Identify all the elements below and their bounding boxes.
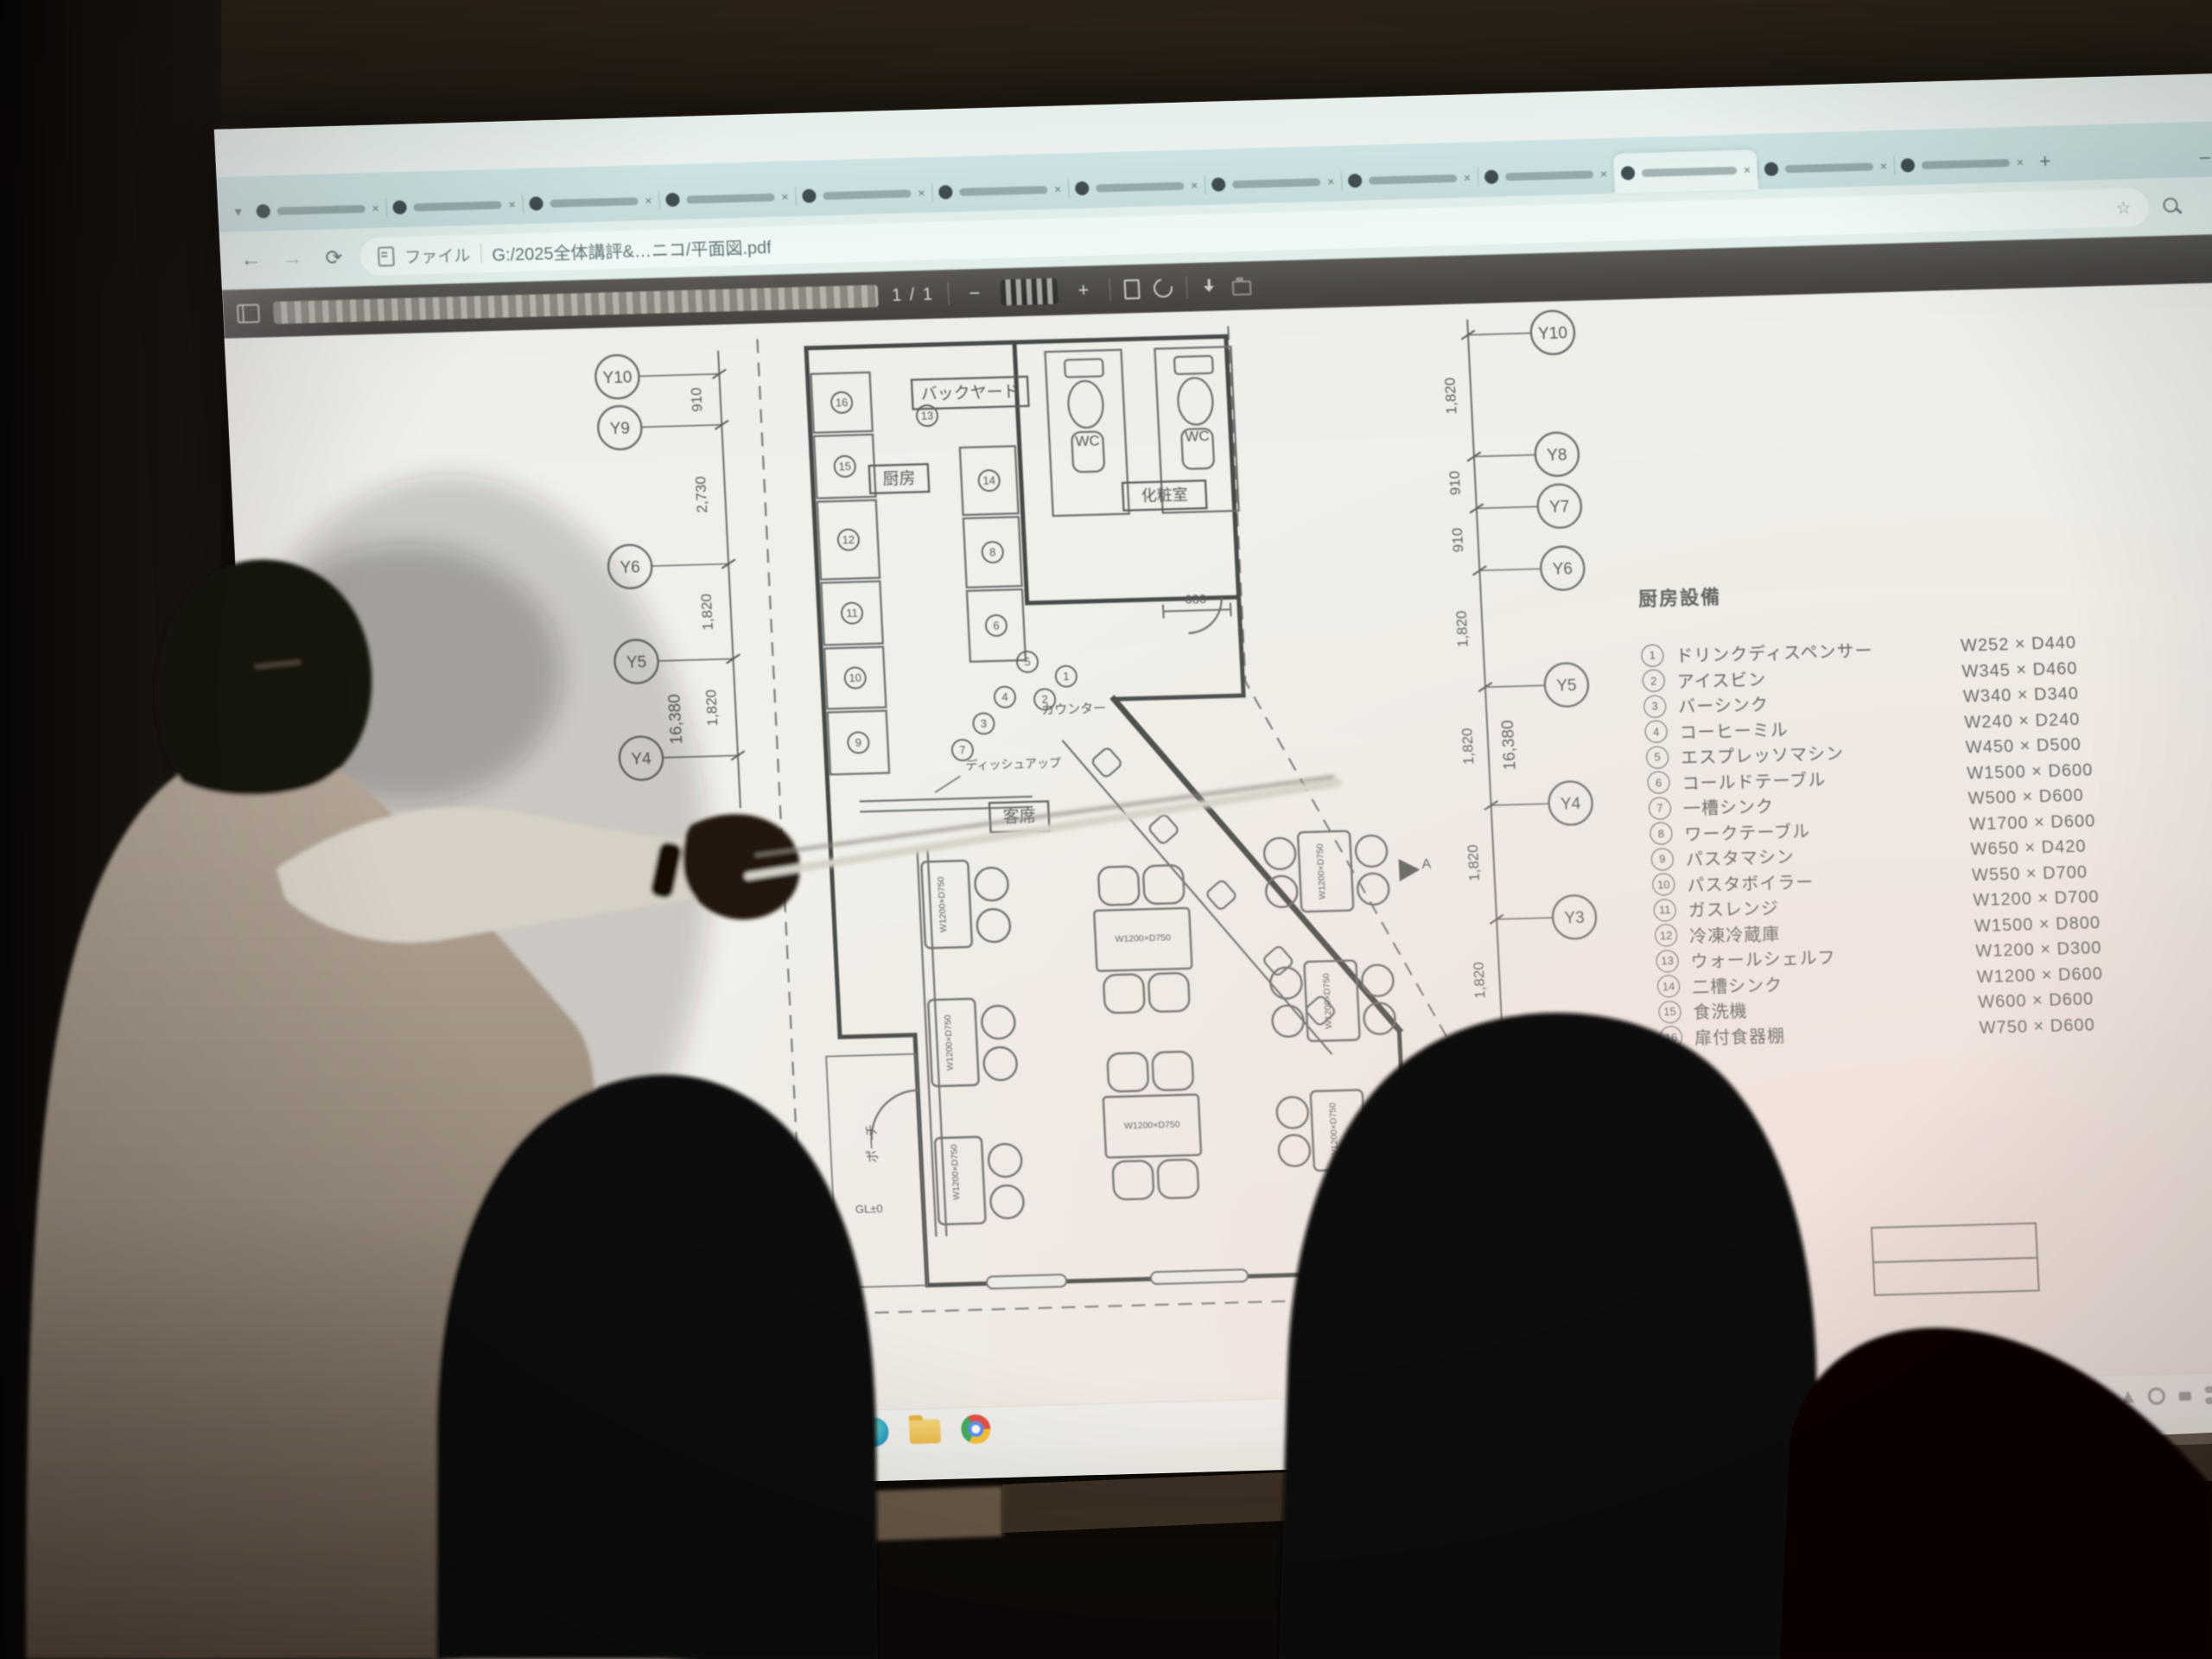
- tab-favicon: [529, 196, 543, 210]
- svg-text:W1200×D750: W1200×D750: [936, 876, 949, 932]
- svg-text:4: 4: [1001, 690, 1008, 703]
- svg-text:WC: WC: [1075, 433, 1100, 450]
- equipment-size: W1200 × D600: [1976, 964, 2103, 988]
- equipment-number: 6: [1647, 772, 1670, 795]
- tab-favicon: [392, 200, 407, 214]
- door-leaves: [987, 1266, 1389, 1289]
- svg-text:630: 630: [1185, 592, 1207, 607]
- new-tab-button[interactable]: +: [2030, 141, 2061, 181]
- zoom-in-button[interactable]: +: [1071, 279, 1096, 302]
- tab-close-icon[interactable]: ×: [1464, 170, 1471, 184]
- tab-title-blur: [276, 205, 365, 215]
- equipment-size: W240 × D240: [1964, 710, 2081, 734]
- tab-close-icon[interactable]: ×: [645, 194, 652, 207]
- svg-text:カウンター: カウンター: [1041, 701, 1107, 717]
- svg-text:1,820: 1,820: [1459, 728, 1477, 765]
- pdf-document-area[interactable]: Y10Y9Y6Y5Y4Y10Y8Y7Y6Y5Y4Y3Y29102,7301,82…: [225, 283, 2212, 1427]
- section-marker: [1399, 858, 1421, 881]
- tab-close-icon[interactable]: ×: [918, 186, 925, 200]
- pdf-page-indicator: 1 / 1: [892, 284, 935, 305]
- tab-favicon: [1211, 177, 1226, 191]
- svg-text:11: 11: [846, 607, 858, 620]
- svg-text:13: 13: [920, 409, 933, 422]
- tab-title-blur: [1505, 170, 1593, 181]
- tray-status-icon[interactable]: [2147, 1388, 2165, 1406]
- pdf-divider: [1109, 278, 1110, 301]
- browser-tab[interactable]: ×: [1067, 165, 1205, 208]
- pdf-divider: [947, 283, 949, 305]
- equipment-number: 9: [1650, 848, 1674, 871]
- svg-text:A: A: [1421, 857, 1432, 872]
- svg-text:客席: 客席: [1002, 807, 1036, 827]
- equipment-size: W1200 × D700: [1973, 888, 2100, 912]
- equipment-number: 3: [1643, 695, 1667, 718]
- download-icon[interactable]: [1200, 278, 1218, 296]
- address-path: G:/2025全体講評&…ニコ/平面図.pdf: [492, 233, 772, 266]
- forward-button[interactable]: →: [277, 246, 308, 271]
- svg-text:W1200×D750: W1200×D750: [1315, 843, 1328, 899]
- svg-text:7: 7: [959, 744, 966, 757]
- tab-favicon: [1621, 166, 1636, 180]
- svg-text:3: 3: [980, 717, 987, 730]
- svg-text:1,820: 1,820: [698, 594, 716, 631]
- svg-text:2: 2: [1041, 693, 1048, 706]
- tab-close-icon[interactable]: ×: [508, 197, 516, 211]
- battery-icon[interactable]: [2179, 1392, 2191, 1401]
- browser-tab[interactable]: ×: [1340, 157, 1478, 200]
- svg-text:8: 8: [989, 545, 996, 558]
- tab-favicon: [938, 185, 953, 199]
- svg-text:14: 14: [982, 474, 995, 486]
- equipment-size: W550 × D700: [1972, 863, 2088, 887]
- search-icon[interactable]: [2160, 194, 2183, 218]
- equipment-number: 15: [1658, 1001, 1681, 1024]
- browser-tab[interactable]: ×: [1477, 154, 1615, 197]
- tab-close-icon[interactable]: ×: [781, 189, 789, 203]
- tab-close-icon[interactable]: ×: [1191, 178, 1198, 192]
- equipment-size: W650 × D420: [1970, 837, 2087, 861]
- equipment-size: W1500 × D800: [1974, 913, 2101, 937]
- tab-favicon: [802, 189, 817, 203]
- tab-close-icon[interactable]: ×: [1743, 162, 1751, 176]
- tab-title-blur: [686, 193, 774, 203]
- tab-favicon: [1484, 170, 1499, 184]
- tab-favicon: [1075, 181, 1090, 195]
- svg-text:Y10: Y10: [1538, 324, 1568, 343]
- equipment-number: 12: [1655, 924, 1678, 947]
- tab-title-blur: [1922, 159, 2010, 169]
- svg-text:1,820: 1,820: [1453, 610, 1471, 647]
- tab-favicon: [665, 193, 680, 207]
- svg-text:W1200×D750: W1200×D750: [943, 1014, 956, 1071]
- browser-tab[interactable]: ×: [1757, 146, 1895, 189]
- browser-taskbar-icon[interactable]: [859, 1417, 890, 1447]
- browser-tab[interactable]: ×: [658, 176, 796, 219]
- equipment-size: W1200 × D300: [1975, 939, 2102, 963]
- tab-search-icon[interactable]: ▾: [226, 192, 251, 232]
- print-icon[interactable]: [1232, 280, 1252, 296]
- file-icon: [378, 246, 395, 267]
- svg-text:バックヤード: バックヤード: [920, 382, 1020, 404]
- projection-screen: ▾ ××××××××××××× + – ← → ⟳ ファイル G:/2025全体…: [214, 73, 2212, 1498]
- tab-title-blur: [1096, 181, 1184, 192]
- tab-favicon: [256, 204, 270, 218]
- back-button[interactable]: ←: [236, 247, 266, 272]
- browser-tab[interactable]: ×: [794, 173, 932, 216]
- tray-chevron-icon[interactable]: [2070, 1395, 2082, 1403]
- pdf-sidebar-toggle-icon[interactable]: [237, 304, 260, 324]
- equipment-size: W1500 × D600: [1967, 760, 2094, 784]
- equipment-size: W340 × D340: [1963, 684, 2080, 708]
- svg-text:6: 6: [993, 619, 1000, 632]
- svg-text:W1200×D750: W1200×D750: [1321, 973, 1334, 1029]
- equipment-size: W600 × D600: [1978, 990, 2094, 1014]
- browser-tab[interactable]: ×: [1204, 162, 1342, 205]
- browser-tab[interactable]: ×: [1613, 149, 1758, 194]
- svg-text:W1200×D750: W1200×D750: [1124, 1119, 1180, 1131]
- svg-text:W1200×D750: W1200×D750: [1115, 932, 1171, 944]
- tab-title-blur: [1642, 166, 1737, 176]
- reload-button[interactable]: ⟳: [319, 245, 349, 270]
- svg-text:Y10: Y10: [602, 369, 632, 388]
- svg-text:W1200×D750: W1200×D750: [1327, 1103, 1340, 1159]
- svg-text:Y7: Y7: [1549, 498, 1570, 517]
- tab-favicon: [1901, 158, 1916, 172]
- browser-tab[interactable]: ×: [385, 184, 523, 227]
- equipment-number: 2: [1642, 670, 1665, 693]
- tab-title-blur: [959, 186, 1047, 196]
- equipment-list: 厨房設備 1ドリンクディスペンサーW252 × D4402アイスビンW345 ×…: [1637, 570, 2152, 1050]
- browser-tab[interactable]: ×: [1893, 142, 2031, 185]
- equipment-size: W750 × D600: [1979, 1015, 2095, 1039]
- svg-text:1,820: 1,820: [1465, 844, 1483, 881]
- tab-title-blur: [823, 189, 911, 200]
- svg-text:Y8: Y8: [1547, 446, 1567, 465]
- svg-text:Y4: Y4: [1560, 795, 1582, 814]
- svg-text:Y6: Y6: [1552, 560, 1573, 579]
- zoom-level-box[interactable]: [1000, 278, 1058, 306]
- svg-text:910: 910: [1446, 471, 1464, 496]
- room-wall: [0, 0, 221, 1659]
- file-explorer-icon[interactable]: [909, 1419, 941, 1444]
- svg-text:Y5: Y5: [626, 653, 646, 672]
- svg-text:5: 5: [1024, 655, 1031, 668]
- svg-text:1,820: 1,820: [702, 690, 721, 727]
- rotate-icon[interactable]: [1150, 275, 1176, 301]
- svg-text:厨房: 厨房: [882, 469, 916, 489]
- zoom-out-button[interactable]: −: [962, 282, 987, 305]
- svg-text:2,730: 2,730: [692, 476, 710, 513]
- equipment-size: W500 × D600: [1967, 786, 2084, 810]
- svg-text:Y9: Y9: [609, 420, 630, 439]
- pdf-filename-blur: [273, 285, 879, 325]
- equipment-number: 4: [1644, 721, 1668, 744]
- tab-close-icon[interactable]: ×: [1599, 167, 1607, 181]
- svg-text:1: 1: [1063, 670, 1070, 683]
- equipment-number: 10: [1652, 873, 1675, 896]
- equipment-size: W1700 × D600: [1969, 811, 2096, 835]
- svg-text:15: 15: [838, 460, 851, 473]
- fit-page-icon[interactable]: [1123, 279, 1140, 299]
- pdf-divider: [1185, 276, 1187, 299]
- svg-text:16: 16: [836, 396, 849, 409]
- svg-text:16,380: 16,380: [665, 694, 686, 745]
- svg-text:16,380: 16,380: [1499, 720, 1520, 771]
- tab-title-blur: [1785, 162, 1873, 173]
- tab-title-blur: [413, 200, 501, 211]
- tab-close-icon[interactable]: ×: [1054, 182, 1062, 196]
- svg-text:910: 910: [688, 387, 705, 412]
- svg-text:GL±0: GL±0: [855, 1202, 883, 1216]
- svg-text:ディッシュアップ: ディッシュアップ: [965, 756, 1061, 772]
- svg-text:Y2: Y2: [1568, 1031, 1589, 1050]
- equipment-size: W450 × D500: [1965, 735, 2082, 759]
- equipment-number: 1: [1641, 644, 1664, 667]
- svg-text:ポーチ: ポーチ: [864, 1123, 880, 1162]
- svg-text:1,820: 1,820: [1470, 962, 1488, 999]
- svg-text:WC: WC: [1185, 428, 1210, 445]
- tab-favicon: [1764, 162, 1779, 175]
- equipment-number: 13: [1656, 950, 1679, 973]
- svg-text:Y5: Y5: [1556, 677, 1577, 696]
- svg-text:1,820: 1,820: [1441, 378, 1459, 415]
- svg-text:Y4: Y4: [631, 750, 652, 769]
- svg-text:9: 9: [855, 736, 861, 749]
- bookmark-star-icon[interactable]: ☆: [2115, 197, 2132, 219]
- equipment-number: 8: [1649, 822, 1673, 845]
- tab-title-blur: [1369, 174, 1457, 184]
- equipment-number: 11: [1653, 899, 1676, 922]
- tray-ime-icon[interactable]: [2095, 1391, 2108, 1403]
- svg-text:10: 10: [849, 671, 861, 684]
- system-tray[interactable]: [2069, 1384, 2212, 1408]
- tab-close-icon[interactable]: ×: [372, 201, 379, 215]
- clock-blur[interactable]: [2204, 1384, 2212, 1404]
- tab-favicon: [1348, 174, 1363, 188]
- tab-close-icon[interactable]: ×: [1879, 159, 1887, 173]
- browser-tab[interactable]: ×: [931, 168, 1069, 212]
- presentation-room-photo: ▾ ××××××××××××× + – ← → ⟳ ファイル G:/2025全体…: [0, 0, 2212, 1659]
- tab-close-icon[interactable]: ×: [1327, 175, 1335, 188]
- address-divider: [480, 244, 482, 263]
- window-minimize-button[interactable]: –: [2187, 137, 2212, 177]
- equipment-number: 7: [1648, 797, 1671, 820]
- svg-text:Y6: Y6: [620, 558, 640, 577]
- svg-text:Y3: Y3: [1564, 909, 1585, 928]
- equipment-number: 14: [1656, 975, 1680, 998]
- equipment-size: W252 × D440: [1961, 633, 2077, 657]
- svg-text:910: 910: [1449, 528, 1466, 553]
- equipment-size: W345 × D460: [1961, 659, 2078, 683]
- browser-tab[interactable]: ×: [521, 181, 659, 224]
- tab-close-icon[interactable]: ×: [2016, 156, 2024, 169]
- equipment-number: 5: [1645, 746, 1669, 769]
- tab-title-blur: [550, 197, 638, 207]
- tab-title-blur: [1232, 178, 1320, 188]
- browser-tab[interactable]: ×: [249, 188, 387, 232]
- browser-window: ▾ ××××××××××××× + – ← → ⟳ ファイル G:/2025全体…: [217, 121, 2212, 1471]
- gear-icon[interactable]: [2195, 195, 2212, 215]
- svg-text:化粧室: 化粧室: [1141, 486, 1188, 505]
- wifi-icon[interactable]: [2121, 1391, 2134, 1403]
- address-scheme-label: ファイル: [404, 242, 471, 267]
- chrome-icon[interactable]: [961, 1414, 992, 1445]
- svg-text:W1200×D750: W1200×D750: [949, 1144, 962, 1200]
- equipment-number: 16: [1659, 1026, 1682, 1049]
- svg-text:12: 12: [842, 533, 855, 546]
